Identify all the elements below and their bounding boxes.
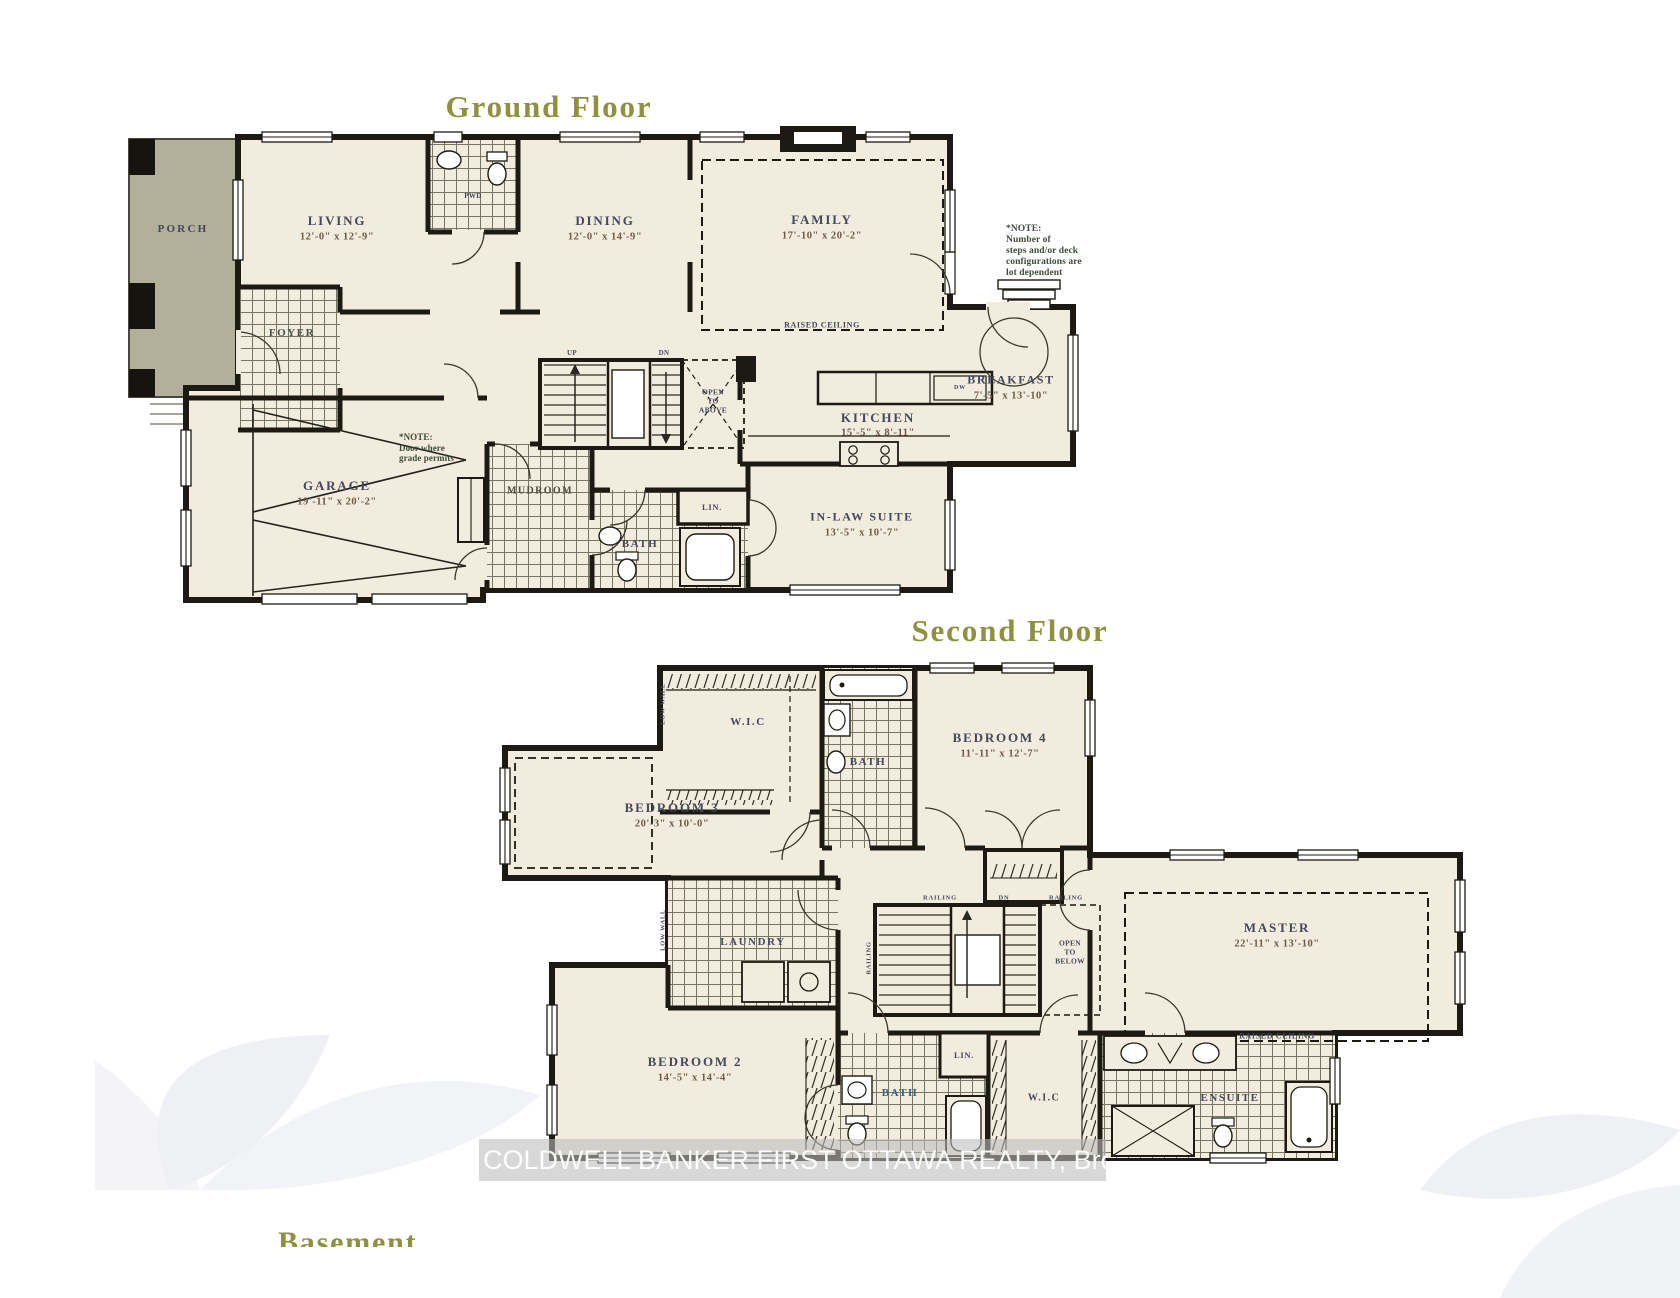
open-to-above-label: OPENTOABOVE: [699, 388, 727, 415]
second-floor-title: Second Floor: [911, 613, 1108, 649]
inlaw-suite-dim: 13'-5" x 10'-7": [825, 528, 899, 539]
family-label: FAMILY: [791, 212, 852, 228]
laundry-label: LAUNDRY: [720, 936, 785, 948]
stairs-dn-label: DN: [659, 349, 670, 357]
low-wall-label-mid: LOW WALL: [660, 909, 667, 951]
dishwasher-label: DW: [954, 385, 966, 391]
railing-label-left: RAILING: [923, 895, 957, 902]
dining-label: DINING: [575, 213, 634, 229]
garage-label: GARAGE: [303, 478, 371, 494]
foyer-floor: [240, 289, 340, 428]
ground-linen-label: LIN.: [702, 502, 722, 512]
ground-bath-label: BATH: [622, 538, 659, 550]
breakfast-dim: 7'-5" x 13'-10": [974, 391, 1048, 402]
railing-label-side: RAILING: [866, 941, 873, 974]
ground-stairs: [540, 360, 682, 448]
floor-plan-page: { "ground": { "title": "Ground Floor", "…: [0, 0, 1680, 1298]
bedroom2-dim: 14'-5" x 14'-4": [658, 1073, 732, 1084]
powder-room-label: PWD: [464, 192, 481, 200]
porch-area: [129, 139, 238, 397]
breakfast-label: BREAKFAST: [967, 373, 1055, 388]
upper-bath-label: BATH: [850, 756, 887, 768]
brokerage-watermark-bar: COLDWELL BANKER FIRST OTTAWA REALTY, Bro…: [479, 1139, 1106, 1181]
second-stairs: [875, 905, 1040, 1015]
basement-title: Basement: [278, 1226, 417, 1247]
garage-dim: 19'-11" x 20'-2": [297, 497, 377, 508]
stairs-dn2-label: DN: [999, 895, 1010, 902]
ground-floor-drawing: [129, 126, 1078, 604]
dining-dim: 12'-0" x 14'-9": [568, 232, 642, 243]
floor-plan-drawing: [0, 0, 1680, 1298]
family-raised-ceiling-label: RAISED CEILING: [784, 321, 860, 330]
upper-wic-label: W.I.C: [730, 716, 765, 728]
family-dim: 17'-10" x 20'-2": [782, 231, 862, 242]
garage-note: *NOTE:Door wheregrade permits: [399, 432, 454, 464]
porch-label: PORCH: [158, 223, 209, 235]
stairs-up-label: UP: [567, 349, 577, 357]
ground-floor-title: Ground Floor: [446, 89, 653, 125]
lower-bath-label: BATH: [882, 1087, 919, 1099]
lower-wic-label: W.I.C: [1028, 1093, 1060, 1104]
living-label: LIVING: [308, 213, 367, 229]
kitchen-label: KITCHEN: [841, 410, 915, 426]
mudroom-floor: [487, 444, 592, 588]
foyer-label: FOYER: [269, 327, 315, 339]
lower-linen-label: LIN.: [954, 1050, 974, 1060]
kitchen-dim: 15'-5" x 8'-11": [841, 428, 915, 439]
bedroom4-dim: 11'-11" x 12'-7": [961, 749, 1040, 760]
inlaw-suite-label: IN-LAW SUITE: [810, 510, 914, 525]
bedroom2-label: BEDROOM 2: [648, 1054, 743, 1070]
bedroom3-dim: 20'-3" x 10'-0": [635, 819, 709, 830]
bedroom3-label: BEDROOM 3: [625, 800, 720, 816]
master-label: MASTER: [1244, 920, 1311, 936]
railing-label-right: RAILING: [1049, 895, 1083, 902]
master-dim: 22'-11" x 13'-10": [1234, 939, 1319, 950]
bedroom4-label: BEDROOM 4: [953, 730, 1048, 746]
deck-note: *NOTE:Number ofsteps and/or deckconfigur…: [1006, 224, 1082, 279]
open-to-below-label: OPENTOBELOW: [1055, 939, 1085, 966]
ensuite-label: ENSUITE: [1200, 1092, 1259, 1104]
mudroom-label: MUDROOM: [507, 486, 573, 497]
living-dim: 12'-0" x 12'-9": [300, 232, 374, 243]
brokerage-watermark-text: COLDWELL BANKER FIRST OTTAWA REALTY, Bro…: [479, 1139, 1106, 1181]
master-raised-ceiling-label: RAISED CEILING: [1239, 1032, 1315, 1041]
low-wall-label-top: LOW WALL: [660, 683, 667, 725]
